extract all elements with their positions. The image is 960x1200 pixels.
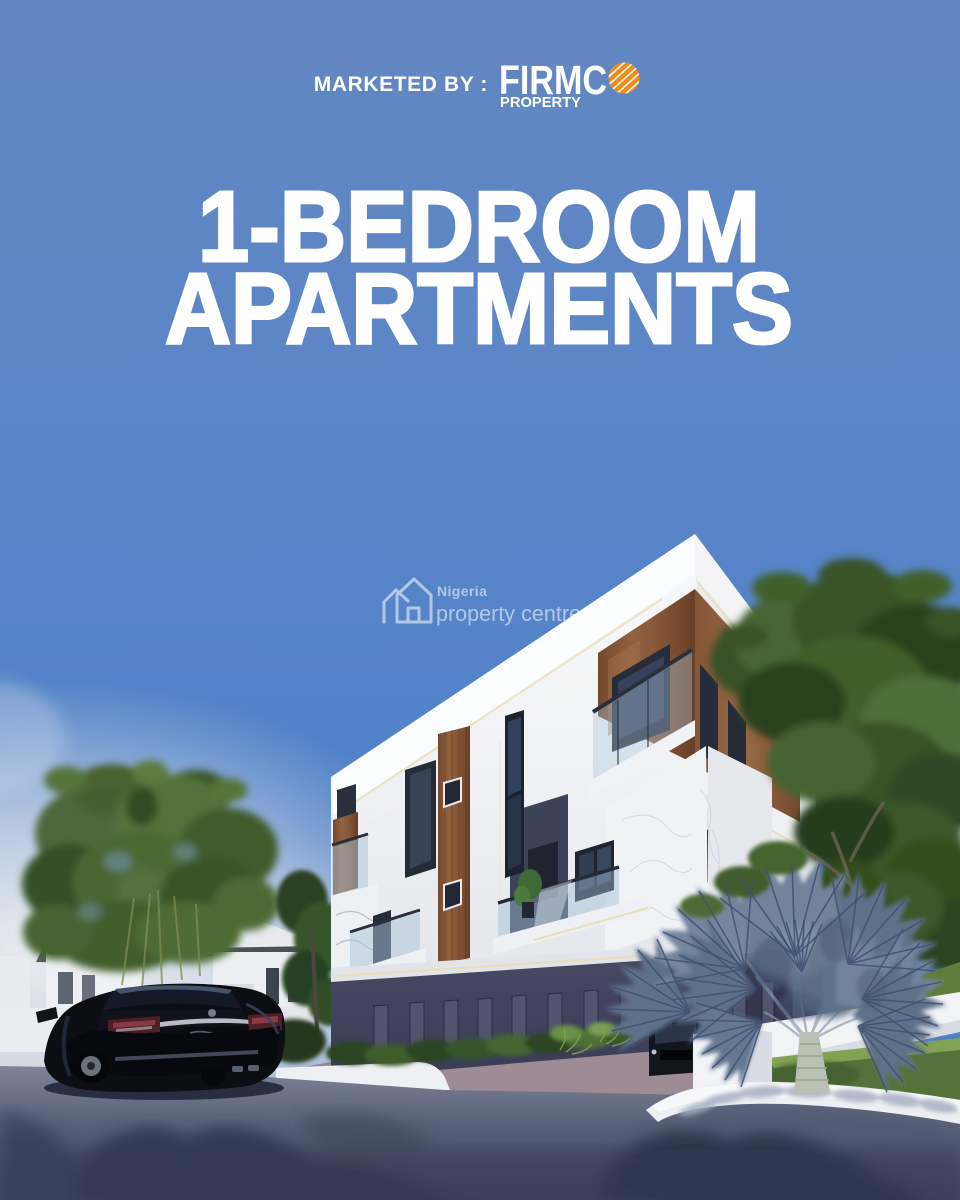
svg-text:MARKETED BY :: MARKETED BY : [314,73,488,96]
svg-text:PROPERTY: PROPERTY [500,94,581,111]
svg-text:property centre: property centre [436,601,581,626]
svg-text:Nigeria: Nigeria [437,583,487,599]
svg-text:APARTMENTS: APARTMENTS [165,253,793,365]
